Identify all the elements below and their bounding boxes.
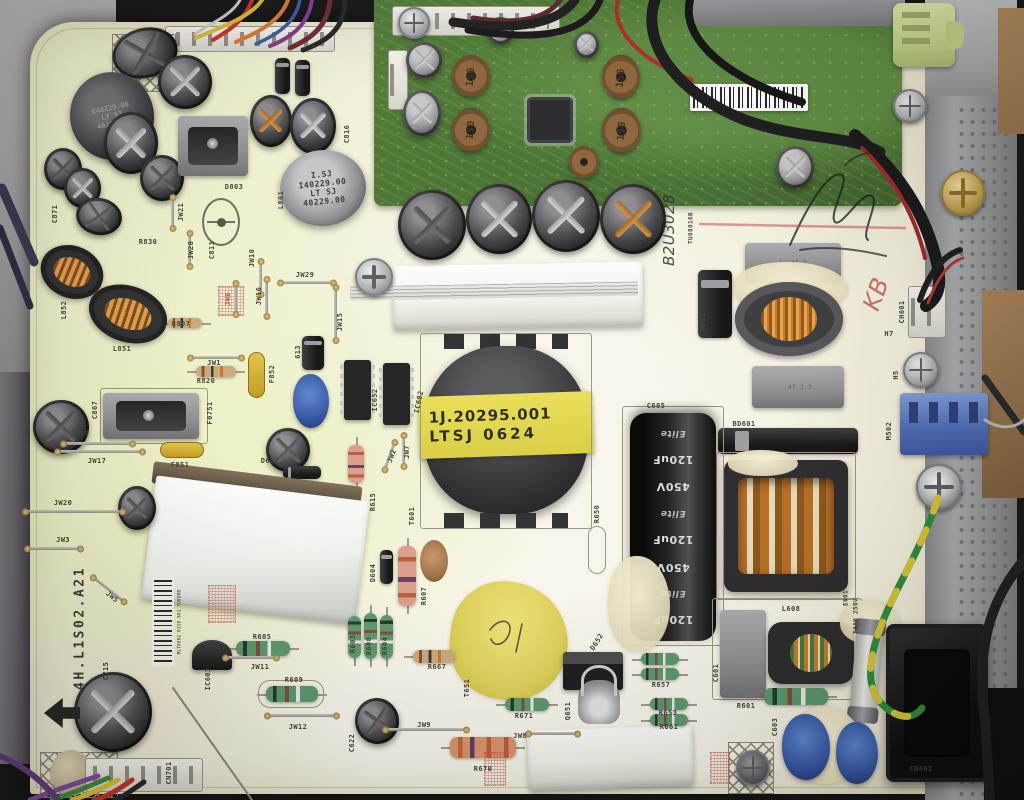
capacitor xyxy=(600,184,666,254)
capacitor xyxy=(776,146,814,188)
disc-capacitor xyxy=(293,374,329,428)
component-layer: 1J.20295.001 LTSJ 0624 E40229.00LT SJ402… xyxy=(0,0,1024,800)
transformer-t651-tape xyxy=(442,574,575,707)
screw xyxy=(736,750,770,786)
resistor-r670 xyxy=(450,737,516,758)
capacitor xyxy=(403,90,441,136)
connector-ch601 xyxy=(908,286,946,338)
capacitor-c715 xyxy=(74,672,152,752)
capacitor xyxy=(406,42,442,78)
qfp-chip xyxy=(530,100,570,140)
resistor-r807 xyxy=(168,318,202,328)
heatsink xyxy=(141,475,370,624)
jumper-jw1 xyxy=(193,356,239,359)
diode-d604 xyxy=(380,550,393,584)
diode-d651 xyxy=(698,270,732,338)
resistor-r608 xyxy=(364,613,377,659)
red-stamp xyxy=(484,752,506,786)
diode-d613 xyxy=(302,336,324,370)
inductor-150 xyxy=(452,108,490,152)
fuse-f851 xyxy=(160,442,204,458)
resistor-r605 xyxy=(236,641,290,656)
red-stamp xyxy=(208,585,236,623)
screw-bracket xyxy=(941,170,985,216)
jumper-jw6 xyxy=(234,286,237,312)
red-stamp xyxy=(218,286,244,316)
resistor-r604 xyxy=(380,615,393,659)
capacitor xyxy=(466,184,532,254)
fuse-f852 xyxy=(248,352,265,398)
screw-greenboard-left xyxy=(398,7,430,39)
bridge-rectifier-bd601 xyxy=(718,428,858,454)
jumper-jw12 xyxy=(270,714,334,717)
diode xyxy=(275,58,290,94)
jumper-jw10 xyxy=(259,264,262,292)
jumper-jw17 xyxy=(60,450,140,453)
jumper-jw19 xyxy=(66,442,130,445)
resistor-r601 xyxy=(764,688,828,705)
resistor-r615 xyxy=(348,445,364,483)
pcb-photo: 1J.20295.001 LTSJ 0624 E40229.00LT SJ402… xyxy=(0,0,1024,800)
resistor-r653 xyxy=(650,698,688,710)
optocoupler-ic602 xyxy=(383,363,410,425)
jumper-jw5 xyxy=(95,578,124,601)
screw xyxy=(355,258,393,296)
barcode-label xyxy=(152,578,174,666)
component-bead xyxy=(420,540,448,582)
component-print: Elite xyxy=(660,428,685,438)
jumper-jw29 xyxy=(283,281,331,284)
jumper-jw9 xyxy=(388,728,464,731)
jumper-jw28 xyxy=(188,236,191,264)
screw-h5 xyxy=(903,352,939,388)
resistor-r609 xyxy=(266,686,318,702)
jumper-jw3 xyxy=(30,547,78,550)
ac-inlet-cn601 xyxy=(886,624,988,782)
silkscreen-outline xyxy=(420,333,592,529)
capacitor xyxy=(290,98,336,154)
jumper-jw2 xyxy=(384,444,395,468)
resistor-r603 xyxy=(348,616,361,658)
screw-ground xyxy=(916,464,962,510)
component-print: 40229.00 xyxy=(303,195,346,208)
component-print: 120uF xyxy=(653,453,694,466)
resistor-r667 xyxy=(413,650,455,663)
jumper-jw16 xyxy=(265,282,268,314)
diode xyxy=(295,60,310,96)
capacitor xyxy=(574,31,599,58)
capacitor-l801: I.SJI40229.00LT SJ40229.00 xyxy=(276,146,369,231)
connector-top xyxy=(165,26,335,52)
clip-d803 xyxy=(178,116,248,176)
component-print: 450V xyxy=(656,480,689,493)
audio-jack xyxy=(893,3,955,67)
connector-m502 xyxy=(900,393,988,455)
connector-cn701 xyxy=(85,758,203,792)
inductor-toroid xyxy=(735,282,843,356)
capacitor-c622 xyxy=(351,695,402,748)
silkscreen-outline-r650 xyxy=(588,526,606,574)
glue-blob xyxy=(608,556,670,652)
barcode-label xyxy=(690,84,808,111)
silkscreen-symbol xyxy=(202,198,240,246)
resistor-r607 xyxy=(398,546,416,606)
resistor-r661 xyxy=(650,714,688,726)
jumper-jw15 xyxy=(334,290,337,338)
red-stamp xyxy=(710,752,730,784)
jumper-jw8 xyxy=(531,732,575,735)
inductor-150 xyxy=(602,108,641,153)
capacitor xyxy=(250,95,292,147)
inductor-150 xyxy=(602,55,640,99)
component-print: 120uF xyxy=(653,533,694,546)
plastic-bracket xyxy=(690,0,905,26)
inductor-small xyxy=(569,146,599,178)
jumper-jw7 xyxy=(402,438,405,464)
common-mode-choke xyxy=(724,460,848,592)
capacitor xyxy=(158,55,212,109)
disc-capacitor-c603 xyxy=(782,714,830,780)
jumper-jw11 xyxy=(228,656,274,659)
optocoupler-ic652 xyxy=(344,360,371,420)
jumper-jw20 xyxy=(28,510,120,513)
resistor-r671 xyxy=(505,698,549,711)
resistor xyxy=(641,668,679,680)
inductor-150 xyxy=(452,55,490,97)
heatsink-clip xyxy=(578,680,620,724)
resistor-r657 xyxy=(641,653,679,665)
film-capacitor-c601 xyxy=(720,610,766,698)
heatsink-f0751 xyxy=(103,393,199,439)
screw-greenboard-right xyxy=(893,89,927,123)
glue-blob xyxy=(728,450,798,476)
capacitor xyxy=(398,190,466,260)
film-capacitor: .47 J 3 xyxy=(752,366,844,408)
resistor-r820 xyxy=(196,366,236,377)
capacitor xyxy=(532,180,600,252)
component-print: Elite xyxy=(660,508,685,518)
disc-capacitor xyxy=(836,722,878,784)
capacitor xyxy=(487,17,514,44)
jumper-jw21 xyxy=(171,200,174,226)
